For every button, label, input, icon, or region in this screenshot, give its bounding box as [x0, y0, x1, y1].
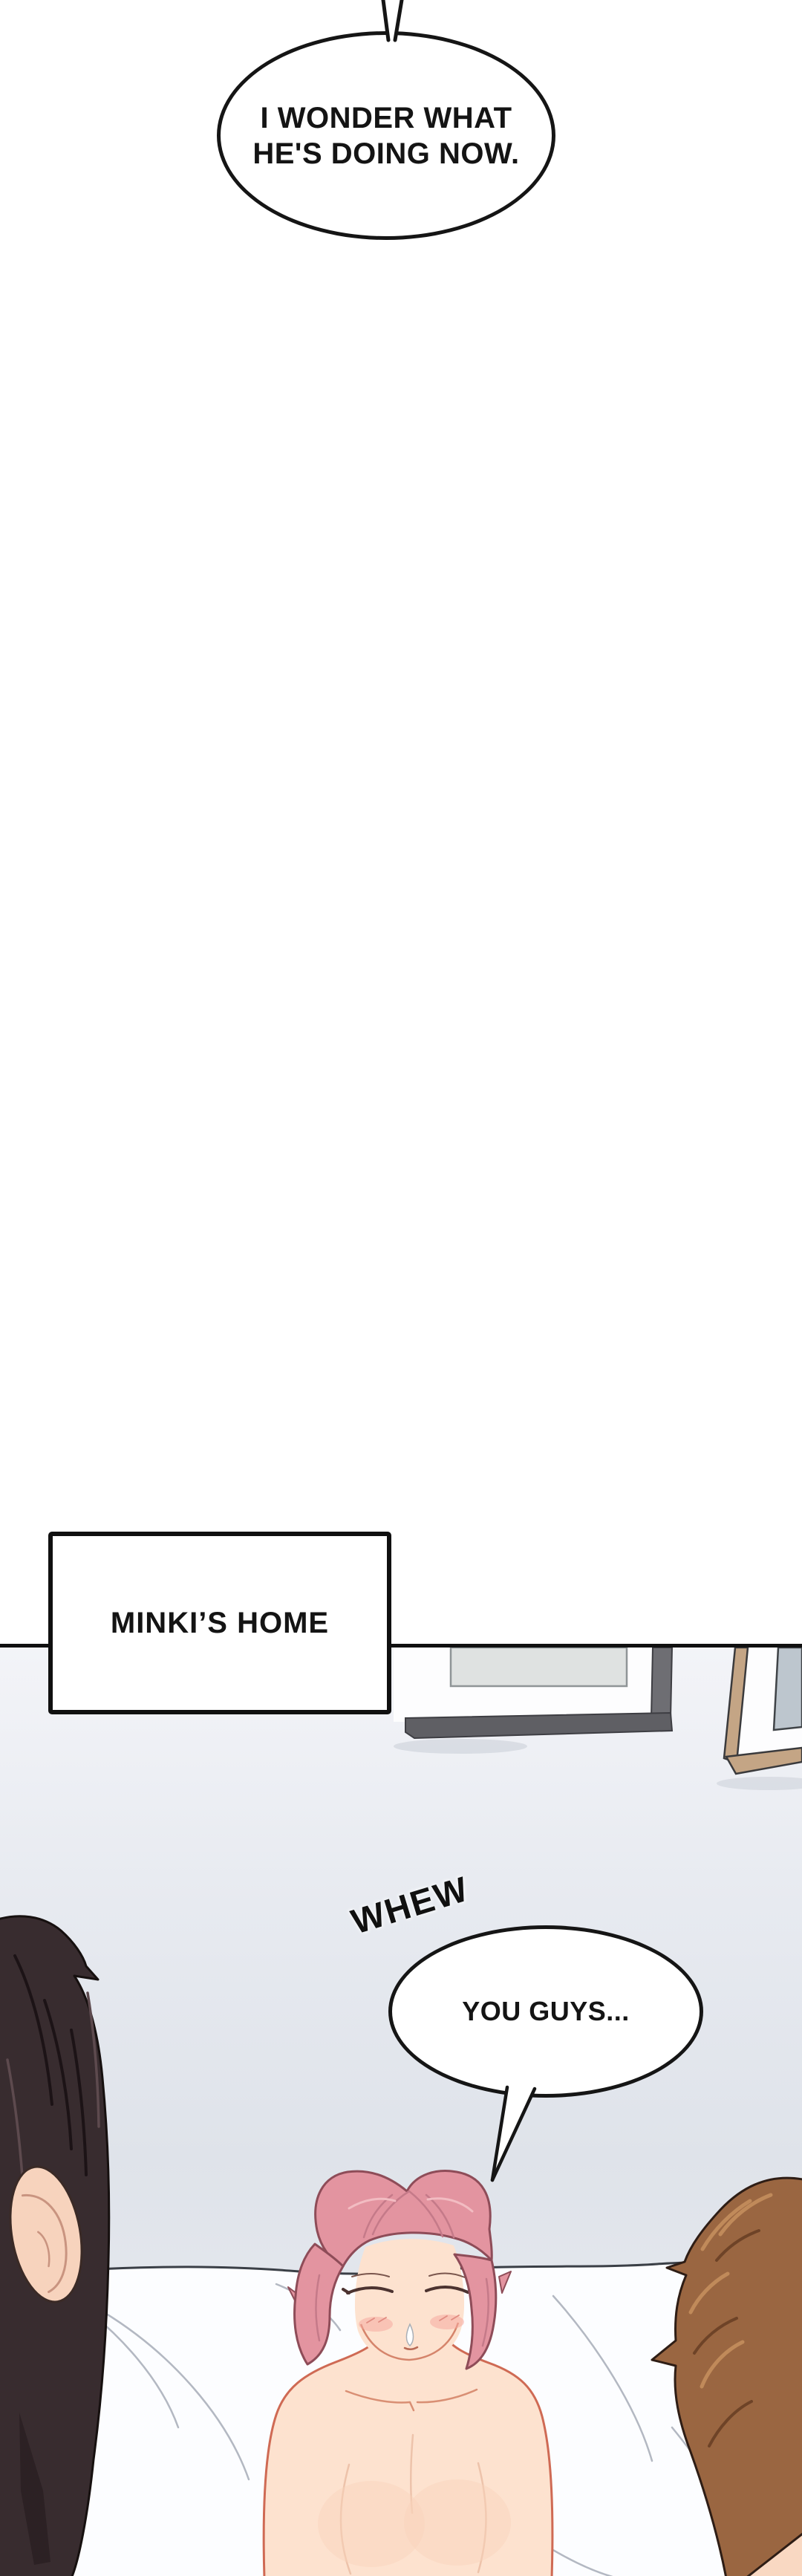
- caption-box: MINKI’S HOME: [48, 1532, 391, 1714]
- speech-bubble-right: YOU GUYS...: [388, 1925, 703, 2098]
- speech-bubble-right-tail: [460, 2077, 550, 2190]
- man-dark-hair-left: [0, 1916, 109, 2576]
- speech-bubble-top-line1: I WONDER WHAT: [260, 100, 512, 136]
- speech-bubble-top-tail: [368, 0, 420, 49]
- caption-text: MINKI’S HOME: [111, 1607, 329, 1640]
- woman-blush-left: [359, 2317, 393, 2332]
- comic-page: I WONDER WHAT HE'S DOING NOW. MINKI’S HO…: [0, 0, 802, 2576]
- speech-bubble-top: I WONDER WHAT HE'S DOING NOW.: [217, 31, 555, 240]
- speech-bubble-top-line2: HE'S DOING NOW.: [252, 136, 519, 172]
- speech-bubble-right-text: YOU GUYS...: [462, 1996, 630, 2027]
- bedroom-panel: [0, 1644, 802, 2576]
